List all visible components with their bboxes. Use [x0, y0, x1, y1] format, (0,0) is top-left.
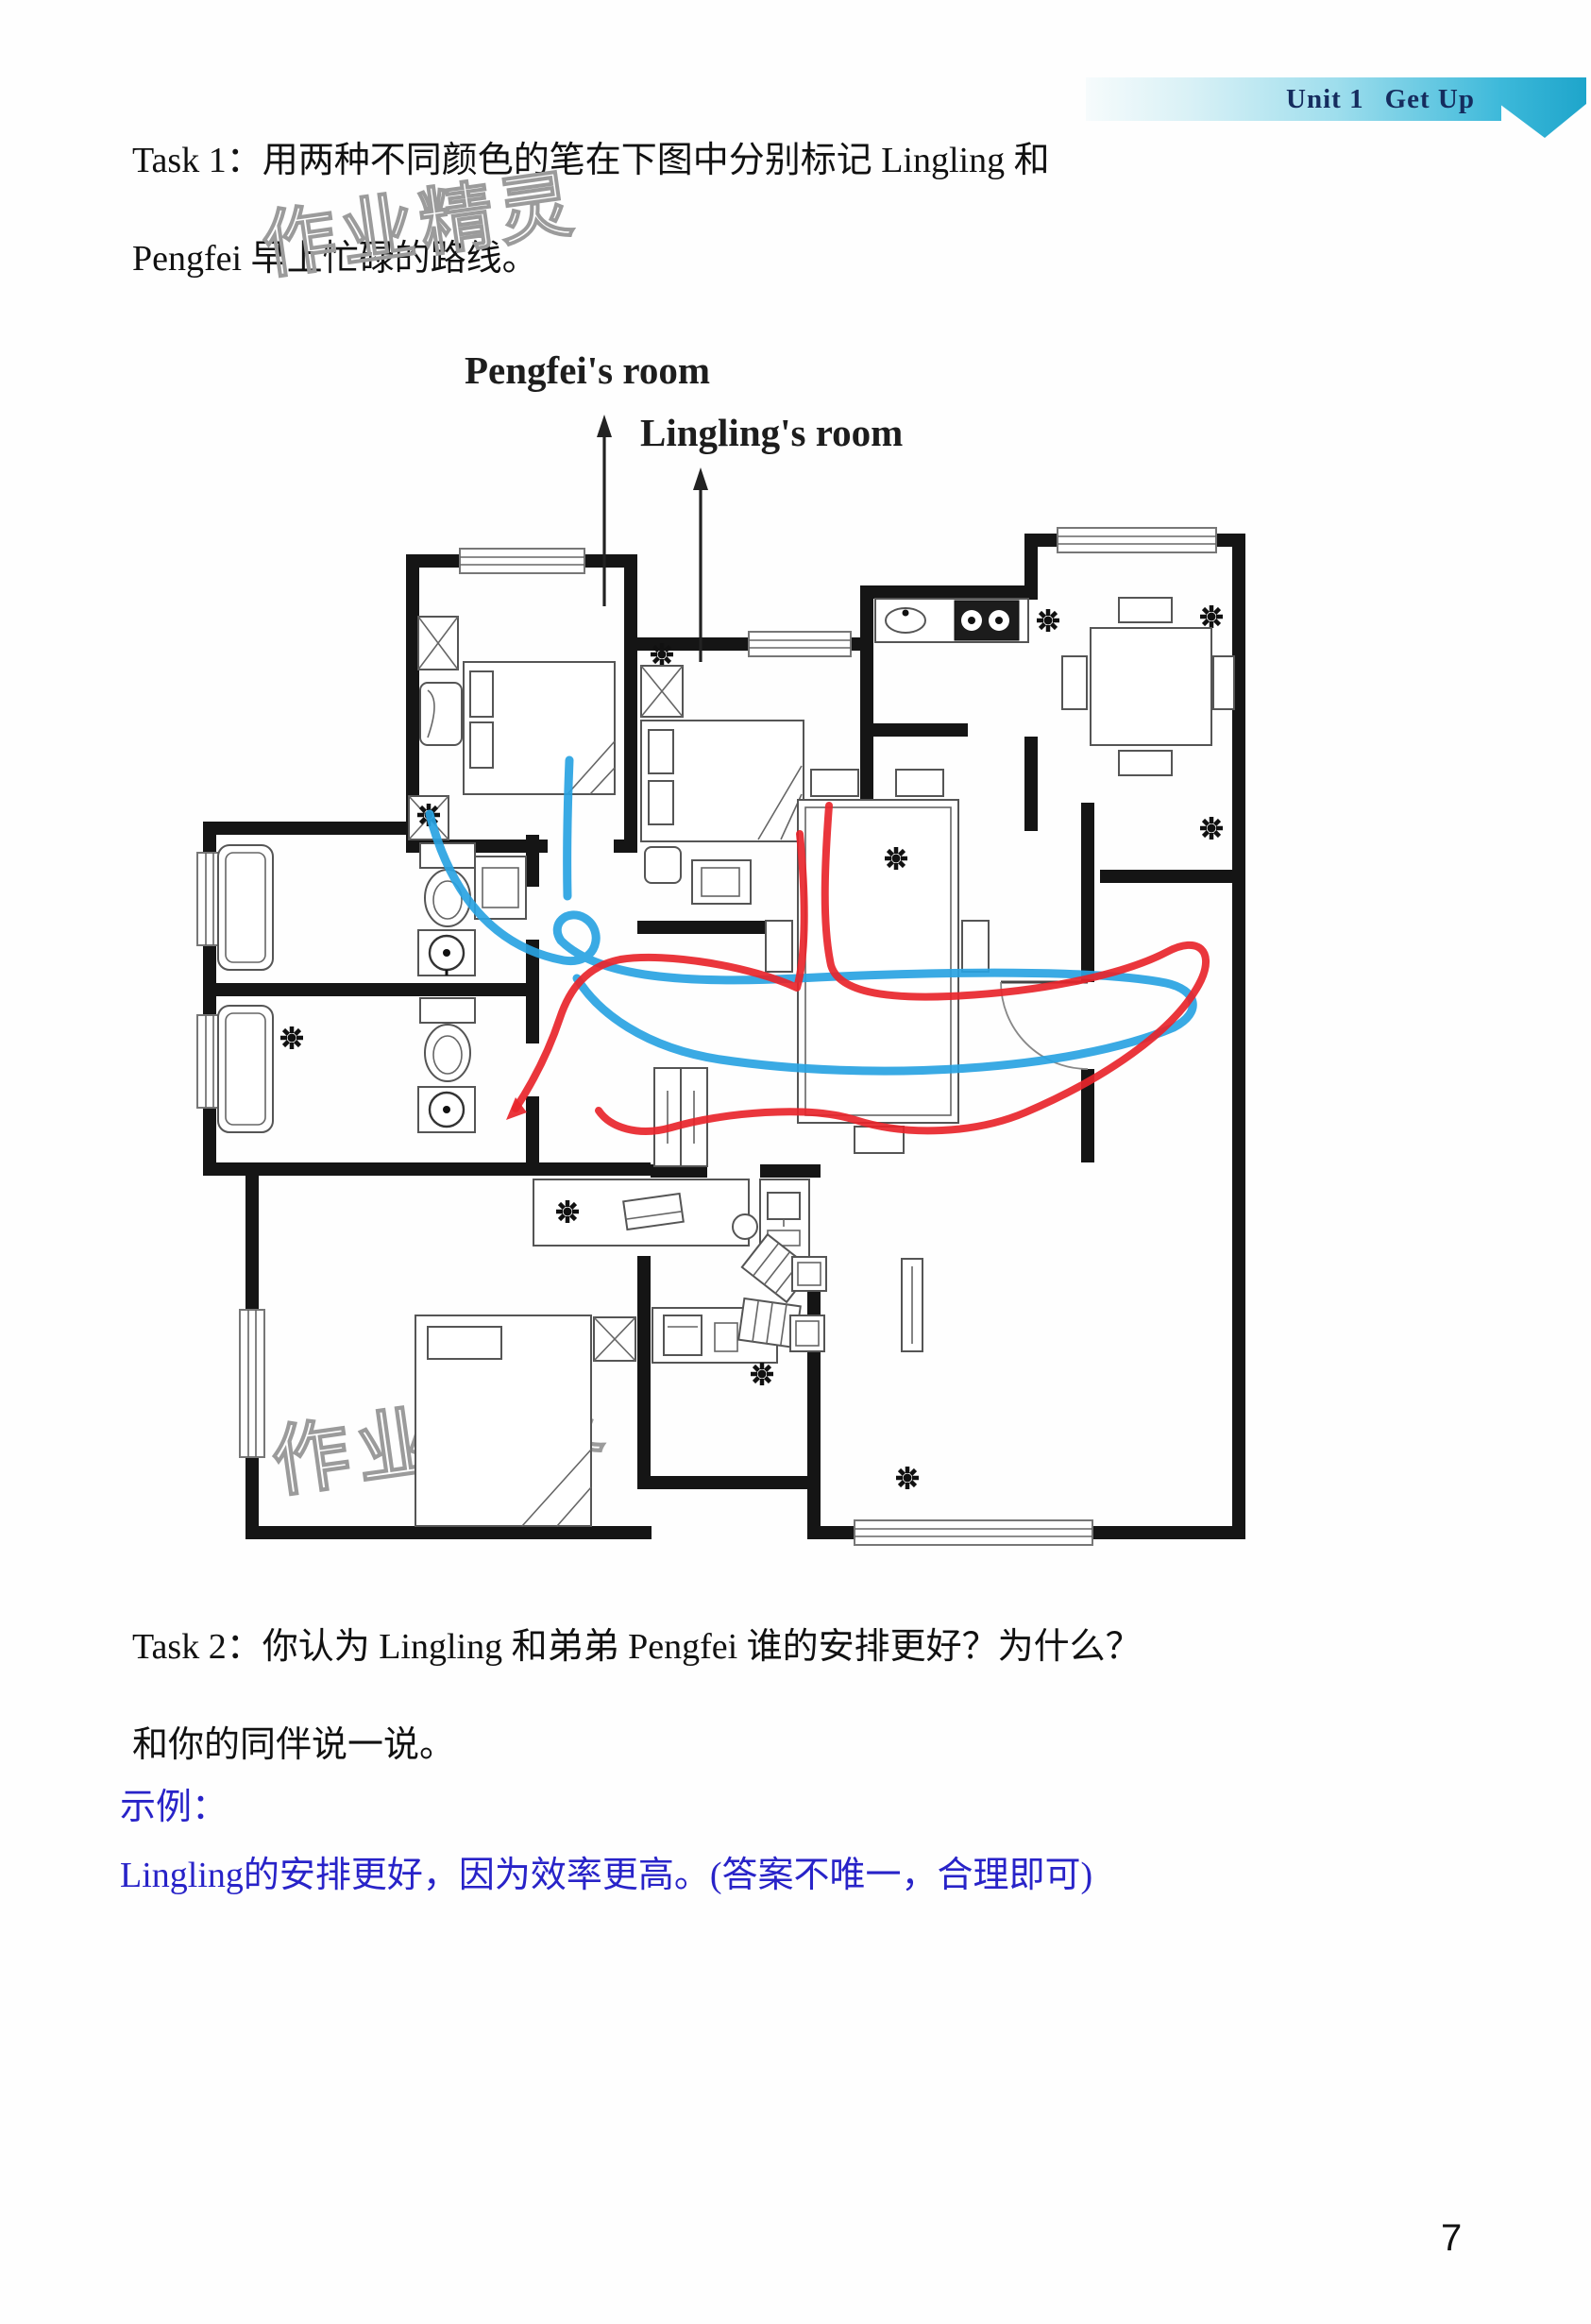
textbook-page: Unit 1 Get Up Task 1：用两种不同颜色的笔在下图中分别标记 L…: [0, 0, 1591, 2324]
task2-text: Task 2：你认为 Lingling 和弟弟 Pengfei 谁的安排更好？为…: [132, 1598, 1492, 1794]
unit-label: Unit 1: [1286, 84, 1364, 115]
window: [460, 549, 584, 573]
pengfei-room-label: Pengfei's room: [465, 348, 710, 393]
upper-bathroom-furniture: [218, 843, 475, 975]
sample-answer-label: 示例：: [120, 1773, 1395, 1841]
window: [240, 1310, 264, 1457]
bottom-bedroom-furniture: [415, 1315, 635, 1526]
kitchen-furniture: [875, 599, 1028, 642]
task2-line1: Task 2：你认为 Lingling 和弟弟 Pengfei 谁的安排更好？为…: [132, 1598, 1492, 1696]
unit-title: Get Up: [1385, 84, 1475, 115]
lingling-bedroom-furniture: [641, 643, 804, 904]
pengfei-arrowhead: [597, 415, 612, 437]
label-arrows: [604, 432, 701, 662]
page-number: 7: [1441, 2217, 1462, 2260]
task1-text: Task 1：用两种不同颜色的笔在下图中分别标记 Lingling 和 Peng…: [132, 111, 1492, 308]
window: [749, 632, 851, 656]
floor-plan-drawing: [194, 316, 1261, 1553]
floor-plan: [194, 316, 1261, 1553]
lower-bathroom-furniture: [218, 998, 475, 1132]
dining-room-furniture: [1037, 598, 1234, 840]
ribbon-tail: [1499, 77, 1591, 145]
corridor-desk: [533, 1179, 749, 1246]
lingling-arrowhead: [693, 467, 708, 490]
window: [855, 1520, 1092, 1545]
sample-answer: 示例： Lingling的安排更好，因为效率更高。(答案不唯一，合理即可): [120, 1773, 1395, 1909]
task1-line1: Task 1：用两种不同颜色的笔在下图中分别标记 Lingling 和: [132, 111, 1492, 210]
lingling-room-label: Lingling's room: [640, 410, 903, 455]
walls: [203, 534, 1245, 1539]
sample-answer-text: Lingling的安排更好，因为效率更高。(答案不唯一，合理即可): [120, 1841, 1395, 1909]
task1-line2: Pengfei 早上忙碌的路线。: [132, 210, 1492, 308]
window: [1058, 528, 1216, 552]
